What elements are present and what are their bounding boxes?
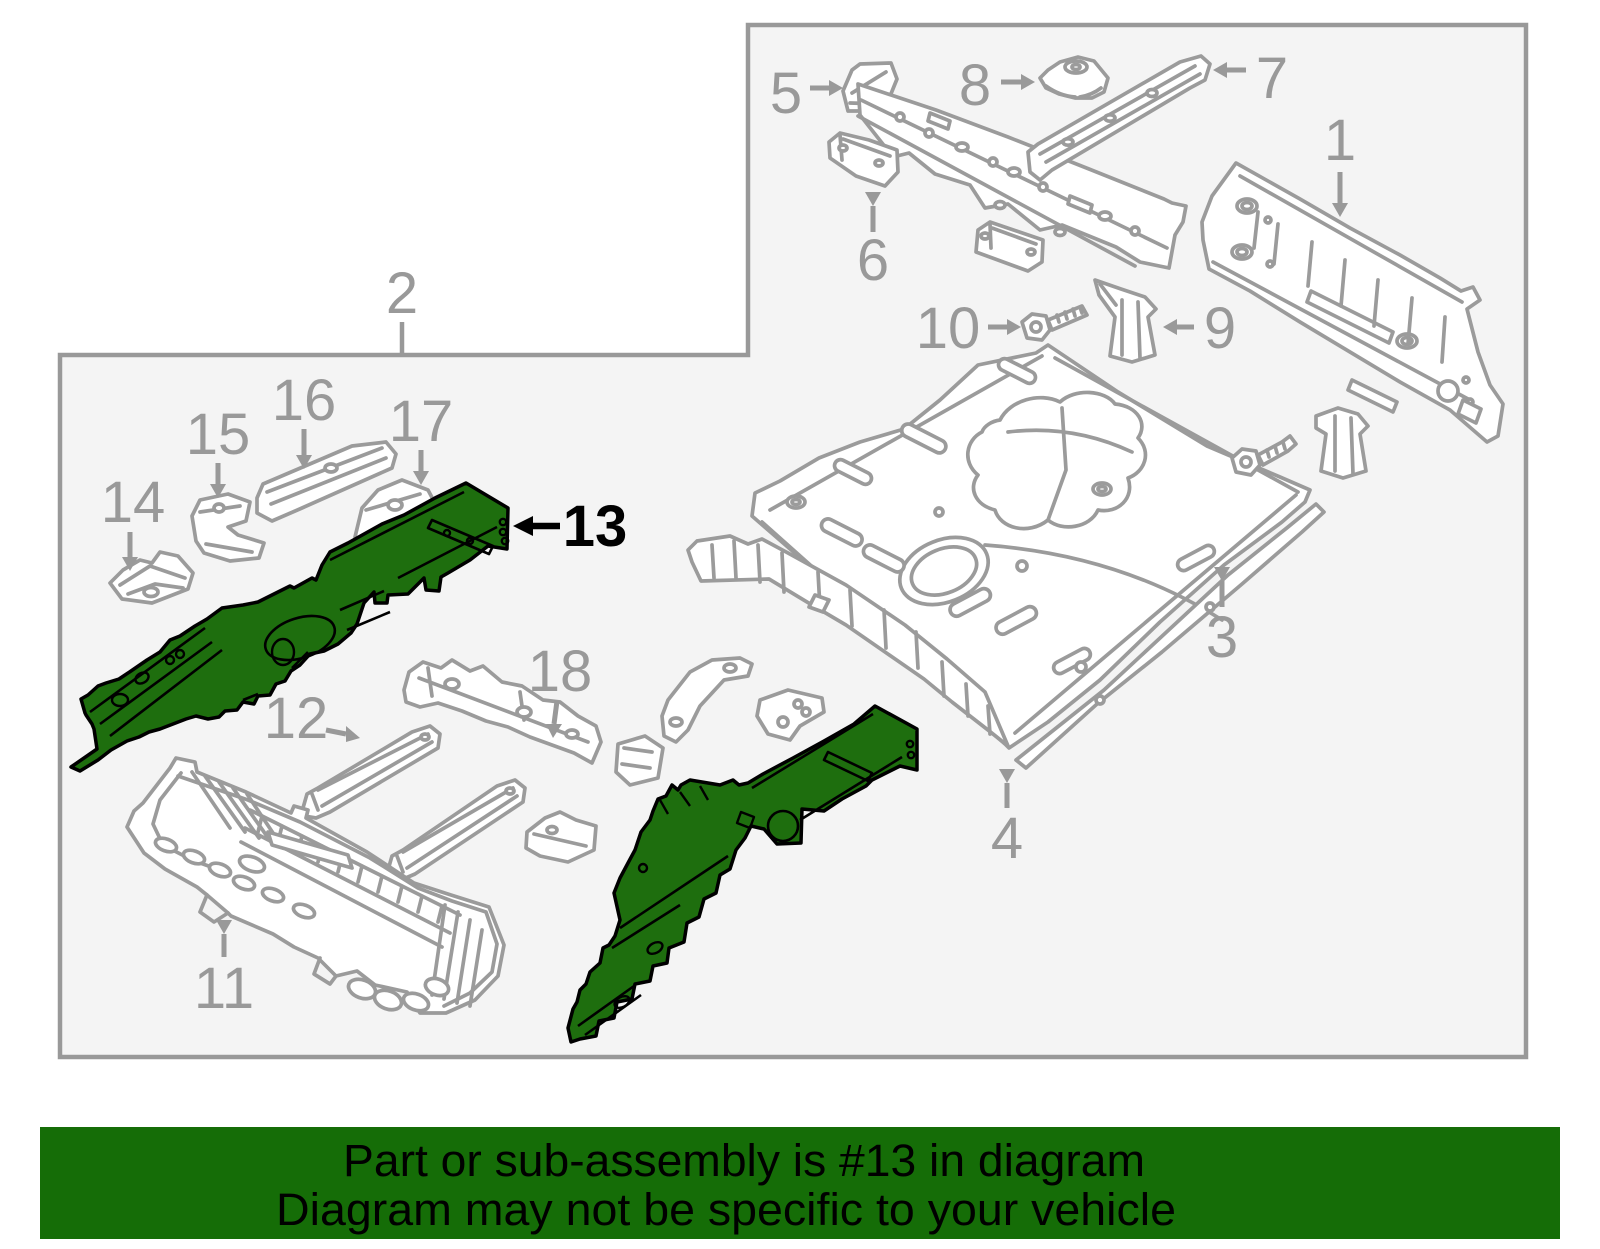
svg-text:Part or sub-assembly is #13 in: Part or sub-assembly is #13 in diagram [343, 1135, 1145, 1186]
svg-text:16: 16 [272, 368, 337, 433]
svg-text:1: 1 [1324, 108, 1356, 173]
svg-text:9: 9 [1204, 296, 1236, 361]
svg-text:3: 3 [1206, 605, 1238, 670]
svg-text:2: 2 [386, 261, 418, 326]
svg-text:7: 7 [1256, 46, 1288, 111]
svg-text:6: 6 [857, 228, 889, 293]
svg-text:10: 10 [916, 296, 981, 361]
svg-text:13: 13 [563, 494, 628, 559]
svg-text:17: 17 [389, 389, 454, 454]
svg-text:11: 11 [194, 956, 254, 1021]
svg-text:8: 8 [959, 53, 991, 118]
svg-text:14: 14 [101, 470, 166, 535]
svg-text:4: 4 [991, 806, 1023, 871]
svg-text:15: 15 [186, 402, 251, 467]
svg-text:5: 5 [770, 61, 802, 126]
svg-text:12: 12 [264, 686, 329, 751]
svg-text:18: 18 [528, 639, 593, 704]
svg-text:Diagram may not be specific to: Diagram may not be specific to your vehi… [276, 1184, 1176, 1235]
